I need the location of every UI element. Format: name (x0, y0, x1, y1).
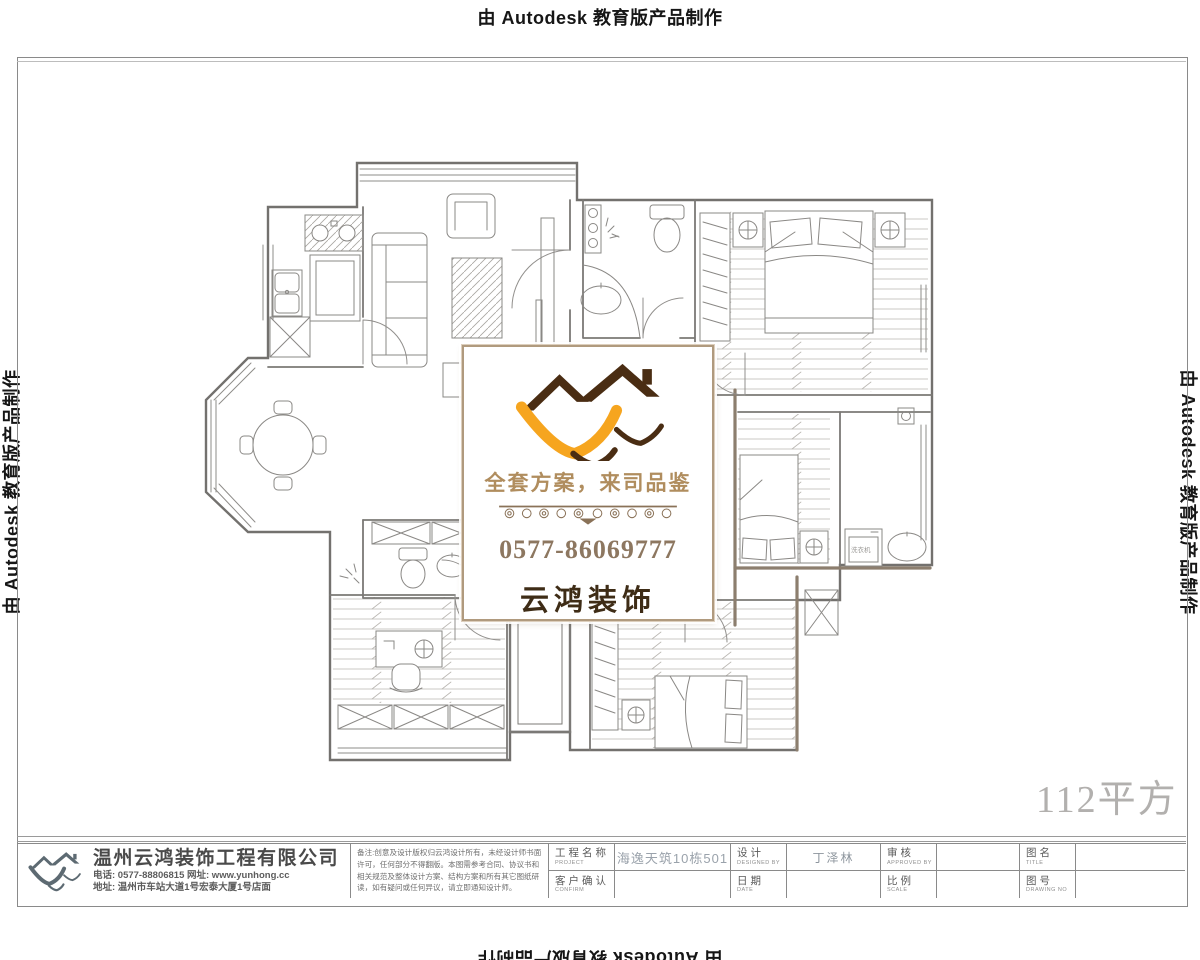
shaft-icon (805, 590, 838, 635)
field-confirm-label: 客户确认 CONFIRM (549, 871, 615, 898)
nightstand-icon (800, 531, 828, 563)
title-block-topline (17, 836, 1186, 842)
kitchen-sink-icon (272, 270, 302, 316)
nightstand-icon (622, 700, 650, 730)
field-scale-label: 比例 SCALE (881, 871, 937, 898)
field-title-label: 图名 TITLE (1020, 844, 1076, 871)
title-block: 温州云鸿装饰工程有限公司 电话: 0577-88806815 网址: www.y… (17, 843, 1186, 898)
sofa-icon (372, 233, 427, 367)
desk-chair-icon (390, 664, 422, 692)
drawing-sheet: 由 Autodesk 教育版产品制作 由 Autodesk 教育版产品制作 由 … (0, 0, 1200, 960)
company-cell: 温州云鸿装饰工程有限公司 电话: 0577-88806815 网址: www.y… (17, 844, 351, 898)
shower-head-icon (606, 218, 619, 238)
field-scale-value (937, 871, 1020, 898)
field-confirm-value (615, 871, 731, 898)
balcony-cabinets-icon (338, 705, 504, 729)
bed-icon (765, 211, 873, 333)
toilet-icon (650, 205, 684, 252)
company-logo-gray-icon (25, 849, 83, 893)
floor-drain-icon (898, 408, 914, 424)
bathroom-main (581, 205, 684, 338)
nightstand-icon (733, 213, 763, 247)
dining-chairs-icon (240, 401, 326, 490)
laundry-sink-icon (888, 532, 926, 561)
bathroom-second (340, 548, 467, 588)
company-logo-icon (493, 357, 683, 461)
card-tagline: 全套方案，来司品鉴 (485, 467, 692, 497)
dining-table-icon (253, 415, 313, 475)
fridge-icon (310, 255, 360, 321)
bed-icon (740, 455, 798, 563)
field-date-label: 日期 DATE (731, 871, 787, 898)
remarks-cell: 备注:创意及设计版权归云鸿设计所有，未经设计师书面许可，任何部分不得翻版。本图需… (351, 844, 549, 898)
field-title-value (1076, 844, 1185, 871)
card-phone: 0577-86069777 (499, 535, 677, 565)
watermark-card: 全套方案，来司品鉴 0577-86069777 云鸿装饰 (462, 345, 714, 621)
field-design-value: 丁泽林 (787, 844, 881, 871)
kitchen (270, 215, 363, 357)
rug-icon (452, 258, 502, 338)
field-date-value (787, 871, 881, 898)
ornament-divider-icon (483, 503, 693, 525)
field-number-value (1076, 871, 1185, 898)
shower-shelf-icon (585, 205, 601, 253)
wardrobe-icon (592, 618, 618, 730)
company-name: 温州云鸿装饰工程有限公司 (93, 848, 339, 870)
bath-sink-icon (581, 283, 621, 314)
dining-area (240, 401, 326, 490)
armchair-icon (447, 194, 495, 238)
company-address: 地址: 温州市车站大道1号宏泰大厦1号店面 (93, 883, 339, 894)
bed-icon (655, 676, 747, 748)
company-phone: 电话: 0577-88806815 网址: www.yunhong.cc (93, 871, 339, 882)
toilet-icon (399, 548, 427, 588)
field-design-label: 设计 DESIGNED BY (731, 844, 787, 871)
nightstand-icon (875, 213, 905, 247)
title-block-fields: 工程名称 PROJECT 海逸天筑10栋501 设计 DESIGNED BY 丁… (549, 844, 1186, 898)
field-number-label: 图号 DRAWING NO (1020, 871, 1076, 898)
field-review-value (937, 844, 1020, 871)
stove-icon (305, 215, 363, 251)
card-brand: 云鸿装饰 (520, 577, 656, 619)
area-label: 112平方 (1036, 768, 1178, 823)
field-project-value: 海逸天筑10栋501 (615, 844, 731, 871)
cabinet-x-icon (270, 317, 310, 357)
shower-screen-icon (583, 265, 640, 338)
field-review-label: 审核 APPROVED BY (881, 844, 937, 871)
shower-head-icon (340, 564, 359, 583)
wardrobe-icon (700, 213, 730, 341)
desk-icon (376, 631, 442, 667)
field-project-label: 工程名称 PROJECT (549, 844, 615, 871)
washer-label: 洗衣机 (851, 545, 871, 554)
